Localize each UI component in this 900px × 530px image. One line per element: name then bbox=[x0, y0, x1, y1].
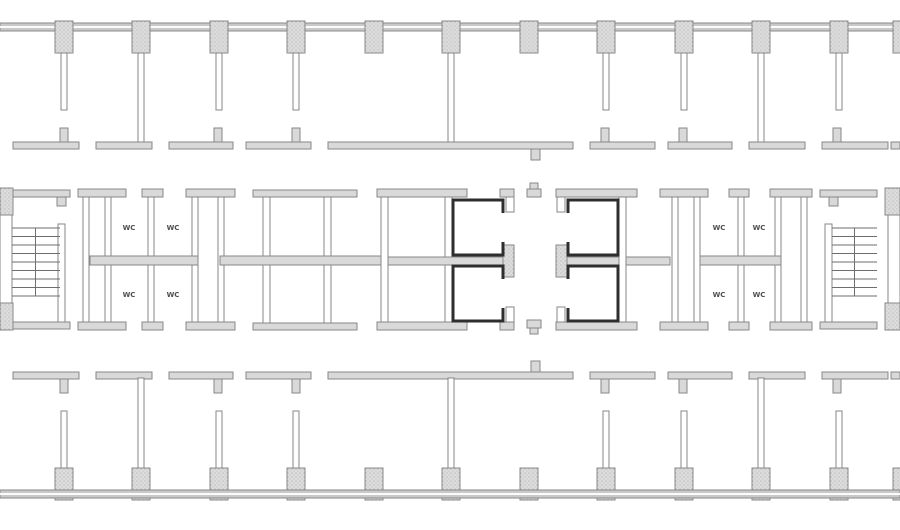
window-fin bbox=[61, 411, 67, 468]
partition-wall bbox=[801, 197, 807, 322]
window-fin bbox=[758, 378, 764, 468]
corridor-wall bbox=[220, 256, 382, 265]
core-wall bbox=[377, 189, 467, 197]
facade-column bbox=[893, 21, 900, 53]
window-fin bbox=[216, 411, 222, 468]
floor-plan-drawing: WC WC WC WC bbox=[0, 0, 900, 530]
wall-pier bbox=[885, 188, 900, 215]
partition-wall bbox=[749, 142, 805, 149]
window-fin bbox=[448, 378, 454, 468]
room-label-wc: WC bbox=[713, 291, 726, 299]
corridor-wall bbox=[90, 256, 198, 265]
room-label-wc: WC bbox=[167, 224, 180, 232]
door-jamb bbox=[506, 307, 514, 322]
window-fin bbox=[603, 411, 609, 468]
core-wall bbox=[820, 190, 877, 197]
partition-wall bbox=[169, 142, 233, 149]
partition-wall bbox=[13, 142, 79, 149]
window-fin bbox=[293, 411, 299, 468]
window-fin bbox=[61, 53, 67, 110]
partition-wall bbox=[749, 372, 805, 379]
partition-wall bbox=[891, 372, 900, 379]
window-fin bbox=[293, 53, 299, 110]
bottom-facade-wall bbox=[0, 490, 900, 498]
core-wall bbox=[770, 189, 812, 197]
door-jamb bbox=[556, 245, 567, 277]
wall-pier bbox=[0, 303, 13, 330]
core-wall bbox=[729, 322, 749, 330]
window-fin bbox=[138, 53, 144, 143]
room-label-wc: WC bbox=[123, 291, 136, 299]
core-wall bbox=[142, 189, 163, 197]
door-jamb bbox=[292, 379, 300, 393]
door-jamb bbox=[506, 197, 514, 212]
partition-wall bbox=[619, 197, 626, 322]
door-jamb bbox=[679, 379, 687, 393]
wall-pier bbox=[0, 188, 13, 215]
facade-column bbox=[132, 21, 150, 53]
core-wall bbox=[820, 322, 877, 329]
door-jamb bbox=[601, 379, 609, 393]
door-jamb bbox=[214, 379, 222, 393]
partition-wall bbox=[668, 142, 732, 149]
door-jamb bbox=[500, 322, 514, 330]
door-jamb bbox=[500, 189, 514, 197]
door-jamb bbox=[679, 128, 687, 142]
door-jamb bbox=[829, 197, 838, 206]
door-jamb bbox=[531, 149, 540, 160]
door-jamb bbox=[503, 245, 514, 277]
floor-plan-canvas: WC WC WC WC bbox=[0, 0, 900, 530]
door-jamb bbox=[57, 197, 66, 206]
facade-column bbox=[675, 21, 693, 53]
door-jamb bbox=[833, 128, 841, 142]
door-jamb bbox=[557, 307, 565, 322]
door-jamb bbox=[833, 379, 841, 393]
window-fin bbox=[681, 411, 687, 468]
core-wall bbox=[556, 322, 637, 330]
door-jamb bbox=[60, 128, 68, 142]
partition-wall bbox=[246, 372, 311, 379]
window-fin bbox=[603, 53, 609, 110]
partition-wall bbox=[590, 142, 655, 149]
core-wall bbox=[78, 322, 126, 330]
partition-wall bbox=[891, 142, 900, 149]
core-wall bbox=[660, 189, 708, 197]
core-wall bbox=[729, 189, 749, 197]
room-label-wc: WC bbox=[123, 224, 136, 232]
core-wall bbox=[556, 189, 637, 197]
door-jamb bbox=[60, 379, 68, 393]
core-wall bbox=[770, 322, 812, 330]
window-fin bbox=[681, 53, 687, 110]
facade-column bbox=[442, 21, 460, 53]
core-wall bbox=[142, 322, 163, 330]
room-label-wc: WC bbox=[753, 291, 766, 299]
door-jamb bbox=[601, 128, 609, 142]
partition-wall bbox=[668, 372, 732, 379]
facade-column bbox=[597, 21, 615, 53]
room-label-wc: WC bbox=[753, 224, 766, 232]
facade-column bbox=[210, 21, 228, 53]
facade-column bbox=[287, 21, 305, 53]
corridor-wall bbox=[388, 257, 513, 265]
core-wall bbox=[186, 322, 235, 330]
partition-wall bbox=[694, 197, 700, 322]
partition-wall bbox=[328, 142, 573, 149]
core-wall bbox=[660, 322, 708, 330]
window-fin bbox=[836, 411, 842, 468]
partition-wall bbox=[822, 372, 888, 379]
room-label-wc: WC bbox=[713, 224, 726, 232]
stair-rail bbox=[58, 224, 65, 322]
partition-wall bbox=[169, 372, 233, 379]
facade-column bbox=[55, 21, 73, 53]
facade-column bbox=[520, 21, 538, 53]
partition-wall bbox=[96, 142, 152, 149]
facade-column bbox=[830, 21, 848, 53]
core-wall bbox=[78, 189, 126, 197]
facade-column bbox=[365, 21, 383, 53]
door-jamb bbox=[292, 128, 300, 142]
window-fin bbox=[448, 53, 454, 143]
core-wall bbox=[253, 323, 357, 330]
window-fin bbox=[836, 53, 842, 110]
facade-column bbox=[752, 21, 770, 53]
partition-wall bbox=[13, 372, 79, 379]
partition-wall bbox=[672, 197, 678, 322]
core-wall bbox=[253, 190, 357, 197]
window-fin bbox=[758, 53, 764, 143]
corridor-wall bbox=[700, 256, 781, 265]
door-jamb bbox=[531, 361, 540, 372]
stair-rail bbox=[825, 224, 832, 322]
wall-pier bbox=[885, 303, 900, 330]
partition-wall bbox=[246, 142, 311, 149]
partition-wall bbox=[822, 142, 888, 149]
door-jamb bbox=[557, 197, 565, 212]
core-wall bbox=[186, 189, 235, 197]
window-fin bbox=[216, 53, 222, 110]
partition-wall bbox=[83, 197, 89, 322]
core-wall bbox=[377, 322, 467, 330]
room-label-wc: WC bbox=[167, 291, 180, 299]
window-fin bbox=[138, 378, 144, 468]
corridor-wall bbox=[626, 257, 670, 265]
partition-wall bbox=[590, 372, 655, 379]
door-jamb bbox=[214, 128, 222, 142]
partition-wall bbox=[381, 197, 388, 322]
